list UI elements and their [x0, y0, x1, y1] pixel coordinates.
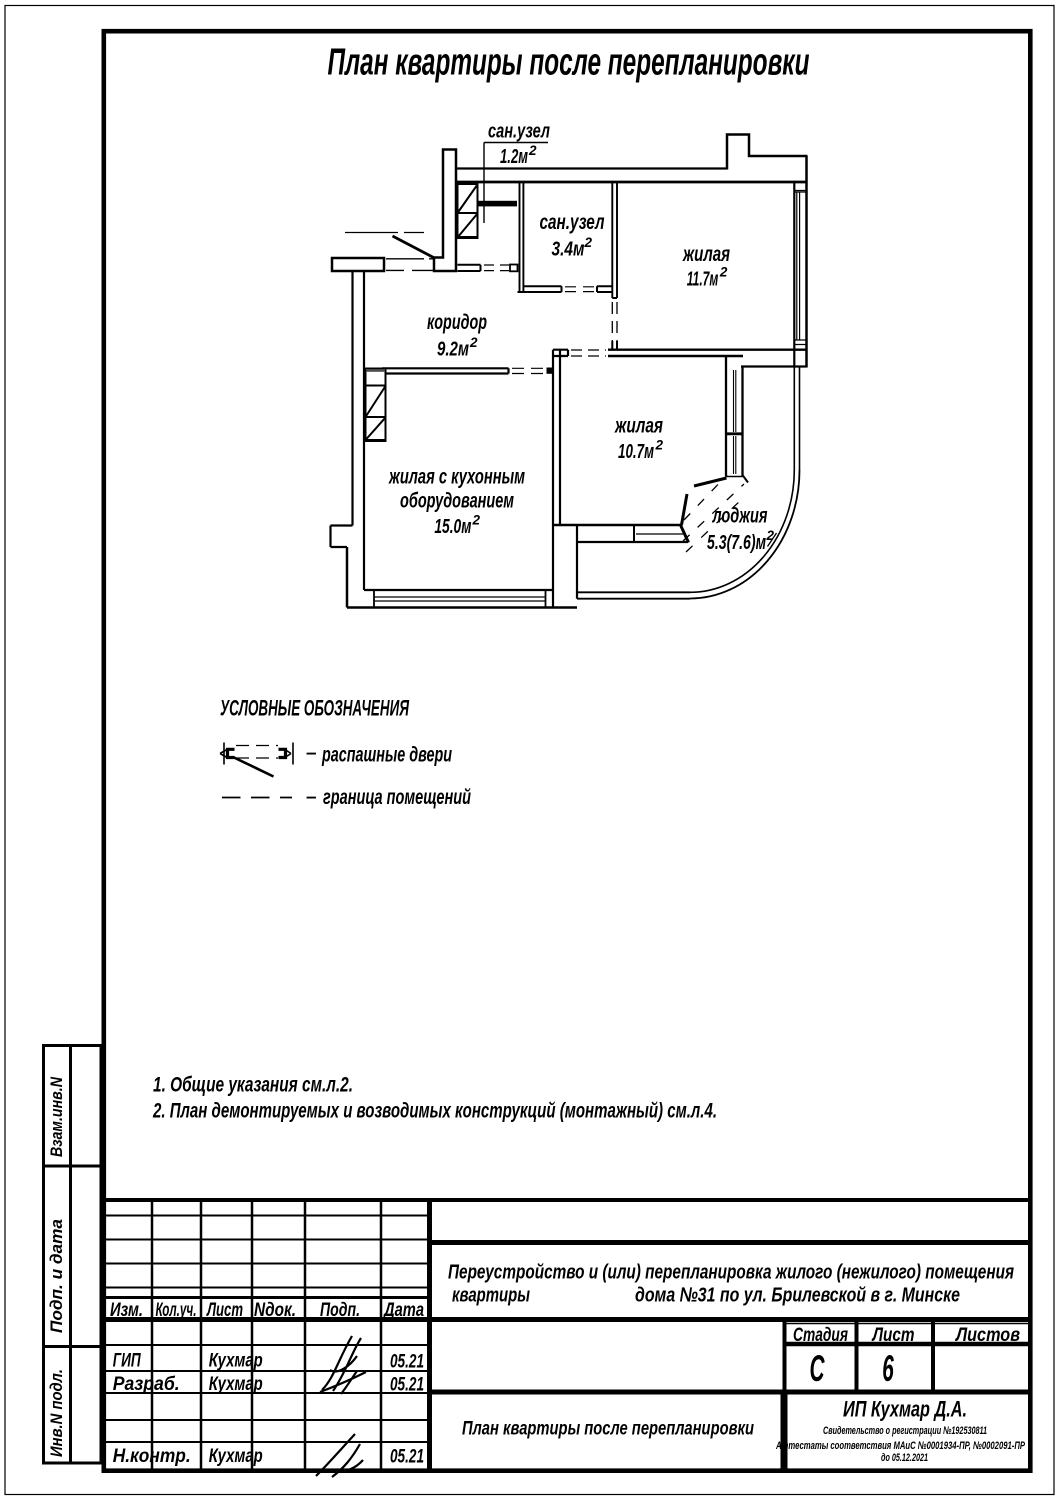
- svg-text:жилая: жилая: [682, 243, 730, 266]
- svg-text:2: 2: [719, 265, 728, 280]
- svg-text:3.4м: 3.4м: [552, 238, 585, 261]
- svg-text:Н.контр.: Н.контр.: [113, 1446, 191, 1467]
- svg-text:2: 2: [528, 143, 537, 158]
- svg-text:Листов: Листов: [954, 1325, 1020, 1346]
- svg-text:Разраб.: Разраб.: [113, 1374, 180, 1395]
- svg-text:жилая: жилая: [614, 415, 663, 438]
- svg-text:до 05.12.2021: до 05.12.2021: [881, 1452, 928, 1464]
- svg-text:УСЛОВНЫЕ ОБОЗНАЧЕНИЯ: УСЛОВНЫЕ ОБОЗНАЧЕНИЯ: [220, 696, 409, 721]
- svg-text:05.21: 05.21: [390, 1352, 424, 1373]
- svg-text:2: 2: [469, 335, 478, 350]
- svg-text:лоджия: лоджия: [712, 505, 768, 528]
- svg-text:1.2м: 1.2м: [500, 145, 528, 168]
- svg-text:Nдок.: Nдок.: [254, 1300, 296, 1321]
- svg-text:2: 2: [766, 528, 775, 543]
- svg-text:1. Общие указания см.л.2.: 1. Общие указания см.л.2.: [153, 1074, 353, 1097]
- svg-text:Переустройство и (или) перепла: Переустройство и (или) перепланировка жи…: [448, 1261, 1014, 1284]
- svg-text:Дата: Дата: [382, 1300, 424, 1321]
- svg-text:05.21: 05.21: [390, 1447, 424, 1468]
- svg-text:6: 6: [882, 1348, 894, 1389]
- svg-text:План квартиры после перепланир: План квартиры после перепланировки: [462, 1419, 754, 1440]
- svg-text:жилая с кухонным: жилая с кухонным: [388, 466, 525, 489]
- svg-text:2: 2: [584, 235, 593, 250]
- svg-text:Подп.: Подп.: [320, 1300, 360, 1321]
- svg-text:Подп. и дата: Подп. и дата: [47, 1219, 66, 1333]
- svg-text:–: –: [306, 743, 317, 764]
- svg-text:10.7м: 10.7м: [618, 440, 654, 463]
- svg-text:15.0м: 15.0м: [434, 515, 471, 538]
- svg-text:План квартиры после перепланир: План квартиры после перепланировки: [328, 42, 810, 84]
- svg-text:Кухмар: Кухмар: [209, 1374, 263, 1395]
- svg-text:ГИП: ГИП: [113, 1351, 141, 1372]
- svg-text:сан.узел: сан.узел: [488, 121, 550, 143]
- svg-text:дома №31 по ул. Брилевской в г: дома №31 по ул. Брилевской в г. Минске: [635, 1284, 960, 1307]
- svg-text:Кол.уч.: Кол.уч.: [156, 1300, 197, 1321]
- svg-text:Аттестаты соответствия МАиС №0: Аттестаты соответствия МАиС №0001934-ПР,…: [775, 1440, 1025, 1452]
- svg-text:граница помещений: граница помещений: [323, 786, 471, 809]
- svg-text:Изм.: Изм.: [110, 1300, 143, 1321]
- svg-text:Лист: Лист: [206, 1300, 243, 1321]
- svg-text:05.21: 05.21: [390, 1375, 424, 1396]
- svg-text:11.7м: 11.7м: [687, 268, 719, 291]
- svg-text:–: –: [306, 787, 317, 808]
- svg-text:Кухмар: Кухмар: [209, 1351, 263, 1372]
- svg-text:Взам.инв.N: Взам.инв.N: [47, 1076, 66, 1157]
- svg-text:Лист: Лист: [871, 1325, 915, 1346]
- svg-text:Свидетельство о регистрации №1: Свидетельство о регистрации №192530811: [823, 1425, 987, 1437]
- svg-text:ИП Кухмар Д.А.: ИП Кухмар Д.А.: [843, 1397, 967, 1422]
- svg-text:квартиры: квартиры: [452, 1284, 530, 1307]
- svg-text:2. План демонтируемых и возвод: 2. План демонтируемых и возводимых конст…: [152, 1100, 717, 1123]
- svg-text:распашные двери: распашные двери: [321, 744, 452, 767]
- svg-text:2: 2: [655, 438, 664, 453]
- svg-text:9.2м: 9.2м: [437, 338, 469, 361]
- svg-text:Стадия: Стадия: [793, 1325, 848, 1346]
- svg-text:коридор: коридор: [427, 311, 487, 334]
- svg-text:Инв.N подл.: Инв.N подл.: [47, 1369, 66, 1457]
- svg-text:оборудованием: оборудованием: [400, 490, 514, 513]
- svg-text:Кухмар: Кухмар: [209, 1446, 263, 1467]
- svg-text:С: С: [810, 1348, 826, 1389]
- svg-text:2: 2: [472, 513, 481, 528]
- svg-text:5.3(7.6)м: 5.3(7.6)м: [707, 531, 766, 554]
- svg-text:сан.узел: сан.узел: [540, 211, 605, 234]
